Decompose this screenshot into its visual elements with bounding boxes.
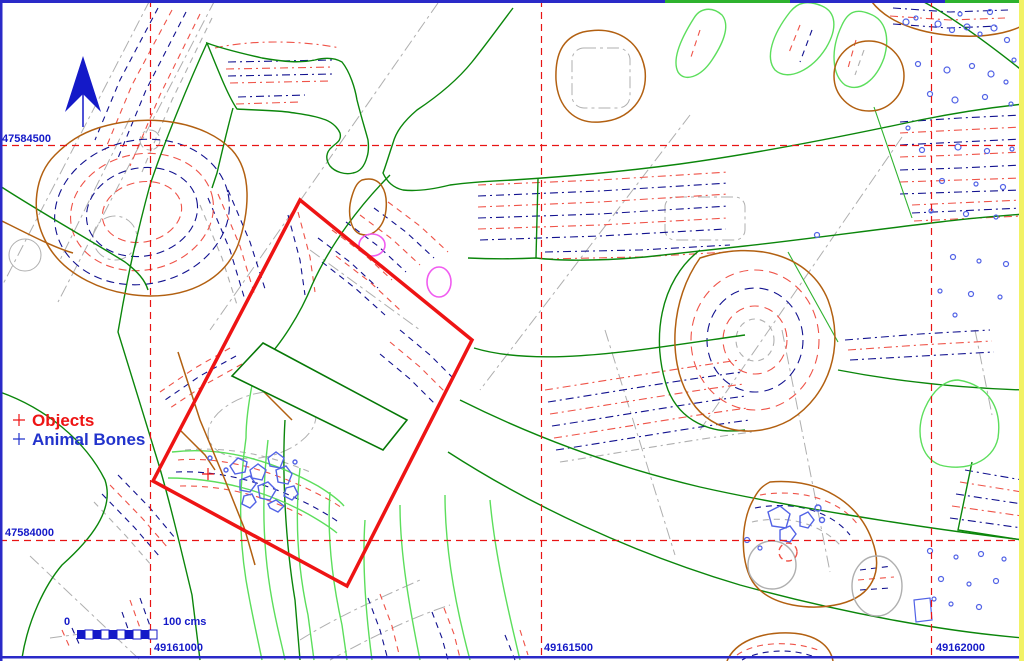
coord-label-47584500: 47584500 [2, 133, 51, 145]
contour-band-lower-channel [545, 360, 752, 462]
contour-band-mid-channel [478, 172, 730, 259]
contour-band-bottom-right [845, 330, 1022, 528]
stone-scatter-blue [745, 10, 1017, 623]
site-map-canvas: 47584500 47584000 49161000 49161500 4916… [0, 0, 1024, 661]
legend: Objects Animal Bones [13, 411, 145, 449]
scale-bar-zero-label: 0 [64, 616, 70, 628]
light-green-streams [168, 3, 999, 660]
scale-bar-end-label: 100 cms [163, 616, 206, 628]
legend-objects-dot-icon [13, 414, 25, 426]
gray-blobs-bottom-right [748, 541, 902, 616]
contour-band-valley-lower [62, 475, 175, 648]
coord-label-49161500: 49161500 [544, 642, 593, 654]
trench-band [232, 343, 407, 450]
coord-label-47584000: 47584000 [5, 527, 54, 539]
green-contours [0, 0, 1024, 660]
object-marker [202, 468, 214, 480]
coord-label-49162000: 49162000 [936, 642, 985, 654]
coord-label-49161000: 49161000 [154, 642, 203, 654]
site-map: 47584500 47584000 49161000 49161500 4916… [0, 0, 1024, 661]
scale-bar: 0 100 cms [64, 616, 206, 639]
coordinate-grid: 47584500 47584000 49161000 49161500 4916… [0, 0, 1019, 656]
legend-animal-bones-label: Animal Bones [32, 430, 145, 449]
contour-band-below-rectangle [368, 594, 528, 660]
legend-animal-bones-dot-icon [13, 433, 25, 445]
bone-cluster-bottom-right [768, 505, 825, 561]
map-border [0, 0, 1024, 661]
legend-objects-label: Objects [32, 411, 94, 430]
contour-knoll-bottom-right [690, 25, 894, 660]
scale-bar-checker [77, 630, 157, 639]
contour-band-top-left [95, 8, 212, 172]
contour-knoll-top-left [41, 123, 243, 300]
north-arrow-icon [65, 56, 101, 127]
brown-contours [0, 2, 1024, 661]
